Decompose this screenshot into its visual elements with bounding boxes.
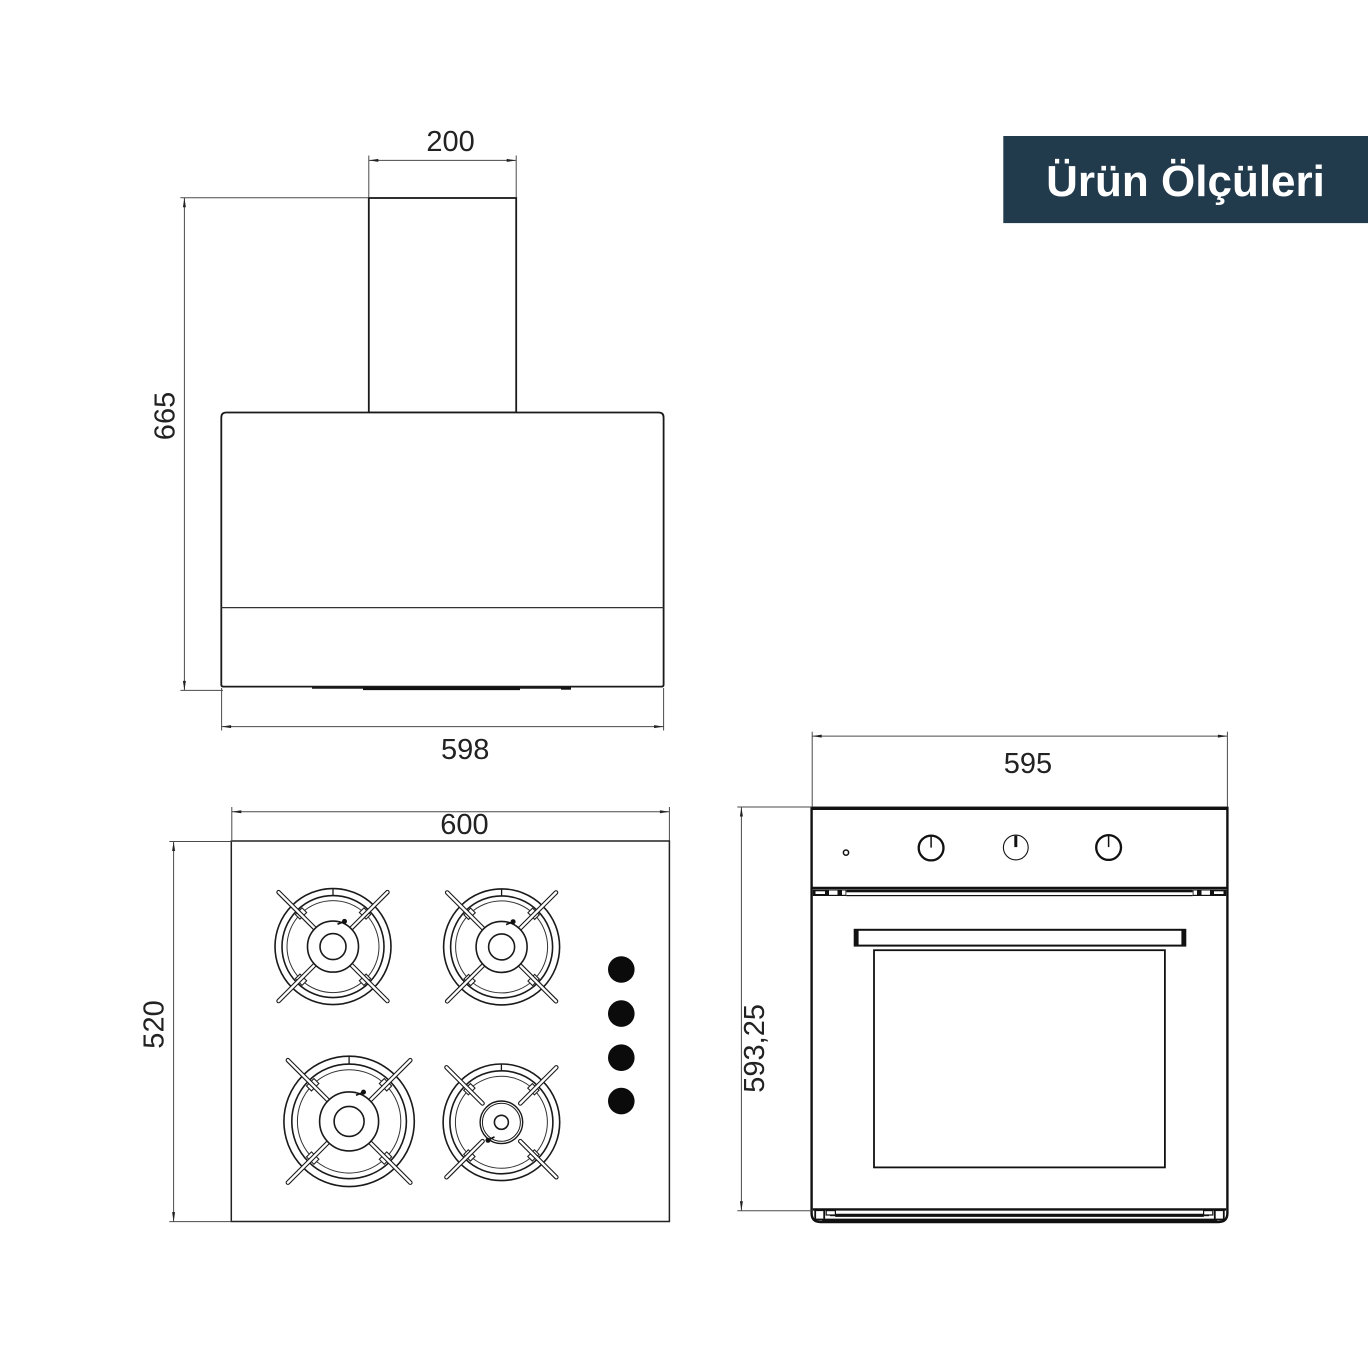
svg-text:600: 600: [440, 809, 488, 841]
svg-text:200: 200: [426, 126, 474, 158]
svg-text:593,25: 593,25: [739, 1004, 771, 1093]
svg-text:520: 520: [139, 1000, 171, 1048]
svg-text:595: 595: [1004, 748, 1052, 780]
svg-text:Ürün Ölçüleri: Ürün Ölçüleri: [1046, 157, 1325, 206]
svg-text:665: 665: [150, 392, 182, 440]
svg-text:598: 598: [441, 734, 489, 766]
